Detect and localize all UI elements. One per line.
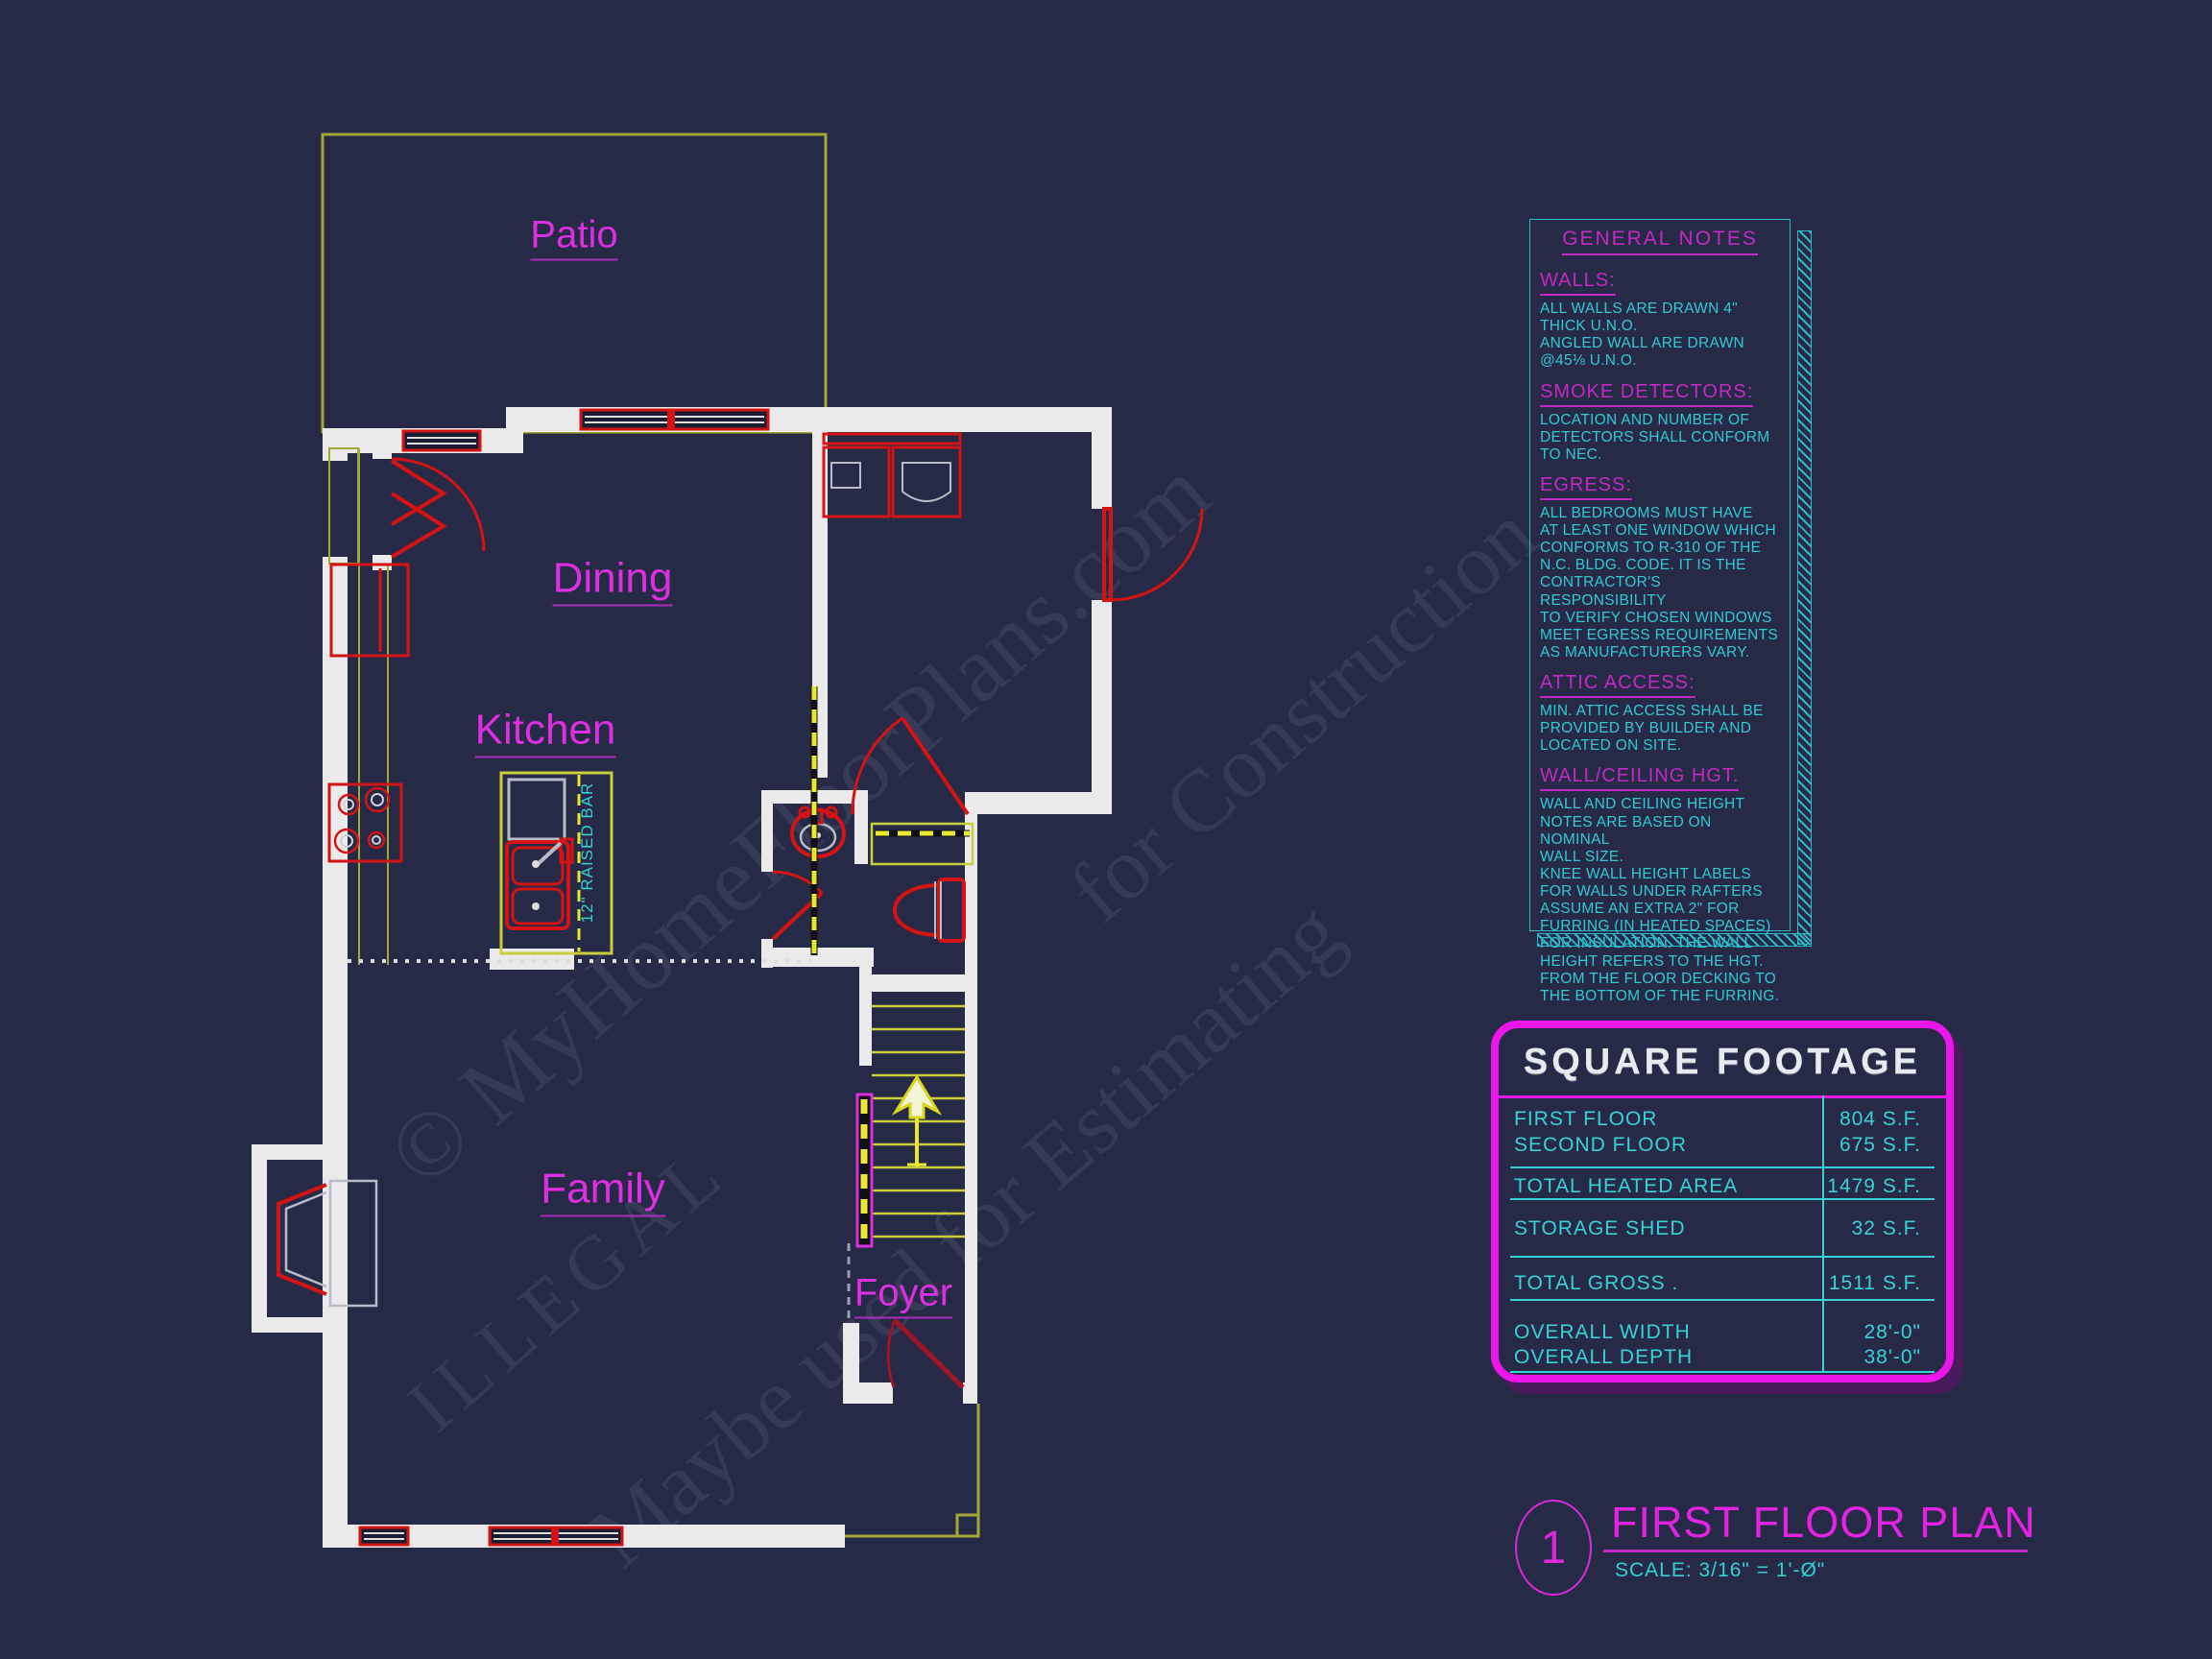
room-label-dining: Dining (553, 558, 673, 607)
row-value: 675 S.F. (1839, 1134, 1921, 1157)
dishwasher (509, 780, 565, 839)
room-label-kitchen: Kitchen (475, 709, 616, 758)
closet-door-leaf (902, 718, 968, 814)
notes-heading: WALLS: (1540, 270, 1616, 296)
front-door (888, 1320, 963, 1387)
row-label: STORAGE SHED (1514, 1217, 1685, 1240)
divider (1499, 1095, 1946, 1098)
notes-body: MIN. ATTIC ACCESS SHALL BE PROVIDED BY B… (1540, 703, 1780, 755)
powder-room-fixtures (792, 807, 973, 941)
table-row: FIRST FLOOR 804 S.F. (1514, 1108, 1921, 1131)
table-row: SECOND FLOOR 675 S.F. (1514, 1134, 1921, 1157)
bath-sink (792, 807, 844, 856)
dashed-lines (348, 686, 849, 1323)
floor-plan-drawing: 12" RAISED BAR (0, 0, 2212, 1659)
notes-heading: SMOKE DETECTORS: (1540, 381, 1753, 407)
table-row: STORAGE SHED 32 S.F. (1514, 1217, 1921, 1240)
room-label-foyer: Foyer (854, 1274, 952, 1319)
drawing-sheet: © MyHomeFloorPlans.com ILLEGAL Maybe use… (0, 0, 2212, 1659)
row-label: OVERALL DEPTH (1514, 1346, 1693, 1369)
row-value: 1479 S.F. (1827, 1175, 1921, 1198)
row-value: 32 S.F. (1852, 1217, 1921, 1240)
divider (1510, 1166, 1935, 1168)
row-value: 28'-0" (1864, 1321, 1922, 1344)
notes-body: WALL AND CEILING HEIGHT NOTES ARE BASED … (1540, 796, 1780, 1005)
notes-section-walls: WALLS: ALL WALLS ARE DRAWN 4" THICK U.N.… (1540, 263, 1780, 371)
table-row: TOTAL GROSS . 1511 S.F. (1514, 1272, 1921, 1295)
patio-door-arc (392, 459, 484, 551)
divider (1510, 1198, 1935, 1200)
table-row: TOTAL HEATED AREA 1479 S.F. (1514, 1175, 1921, 1198)
notes-heading: ATTIC ACCESS: (1540, 672, 1695, 698)
sheet-number: 1 (1541, 1522, 1567, 1575)
washer (824, 447, 889, 517)
notes-section-smoke-detectors: SMOKE DETECTORS: LOCATION AND NUMBER OF … (1540, 374, 1780, 464)
notes-hatch-border-right (1797, 230, 1812, 945)
general-notes-panel: GENERAL NOTES WALLS: ALL WALLS ARE DRAWN… (1529, 219, 1791, 931)
notes-body: ALL BEDROOMS MUST HAVE AT LEAST ONE WIND… (1540, 505, 1780, 661)
square-footage-table: SQUARE FOOTAGE FIRST FLOOR 804 S.F. SECO… (1491, 1021, 1954, 1382)
notes-body: LOCATION AND NUMBER OF DETECTORS SHALL C… (1540, 412, 1780, 464)
notes-section-attic-access: ATTIC ACCESS: MIN. ATTIC ACCESS SHALL BE… (1540, 665, 1780, 755)
general-notes-title: GENERAL NOTES (1562, 228, 1758, 255)
sheet-number-bubble: 1 (1515, 1500, 1592, 1596)
divider (1510, 1256, 1935, 1258)
divider (1510, 1299, 1935, 1301)
row-value: 804 S.F. (1839, 1108, 1921, 1131)
notes-section-wall-ceiling-hgt: WALL/CEILING HGT. WALL AND CEILING HEIGH… (1540, 758, 1780, 1005)
drawing-title: FIRST FLOOR PLAN (1611, 1498, 2036, 1548)
room-label-patio: Patio (530, 216, 617, 261)
closet-shelf (872, 824, 973, 864)
notes-body: ALL WALLS ARE DRAWN 4" THICK U.N.O. ANGL… (1540, 301, 1780, 371)
patio-door-leaf (392, 493, 444, 557)
pantry-cabinet (329, 448, 358, 564)
row-value: 38'-0" (1864, 1346, 1922, 1369)
notes-section-egress: EGRESS: ALL BEDROOMS MUST HAVE AT LEAST … (1540, 468, 1780, 661)
row-label: TOTAL GROSS . (1514, 1272, 1678, 1295)
raised-bar-label: 12" RAISED BAR (578, 782, 596, 924)
table-row: OVERALL DEPTH 38'-0" (1514, 1346, 1921, 1369)
divider (1510, 1371, 1935, 1373)
notes-heading: WALL/CEILING HGT. (1540, 765, 1739, 791)
laundry-closet (824, 434, 960, 517)
row-value: 1511 S.F. (1829, 1272, 1921, 1295)
porch-outline (845, 1404, 978, 1536)
notes-hatch-border-bottom (1537, 933, 1812, 947)
title-underline (1603, 1550, 2028, 1552)
notes-heading: EGRESS: (1540, 474, 1632, 500)
drawing-scale: SCALE: 3/16" = 1'-Ø" (1615, 1559, 1825, 1582)
patio-outline (323, 134, 826, 432)
stairs (857, 1006, 965, 1246)
side-door-leaf (1104, 509, 1111, 600)
row-label: TOTAL HEATED AREA (1514, 1175, 1738, 1198)
row-label: FIRST FLOOR (1514, 1108, 1657, 1131)
table-row: OVERALL WIDTH 28'-0" (1514, 1321, 1921, 1344)
square-footage-title: SQUARE FOOTAGE (1499, 1042, 1946, 1083)
row-label: OVERALL WIDTH (1514, 1321, 1691, 1344)
row-label: SECOND FLOOR (1514, 1134, 1687, 1157)
kitchen-sink (507, 839, 572, 928)
side-door-arc (1111, 509, 1202, 600)
stair-handrail (857, 1094, 872, 1246)
toilet (895, 879, 964, 941)
room-label-family: Family (541, 1168, 665, 1217)
